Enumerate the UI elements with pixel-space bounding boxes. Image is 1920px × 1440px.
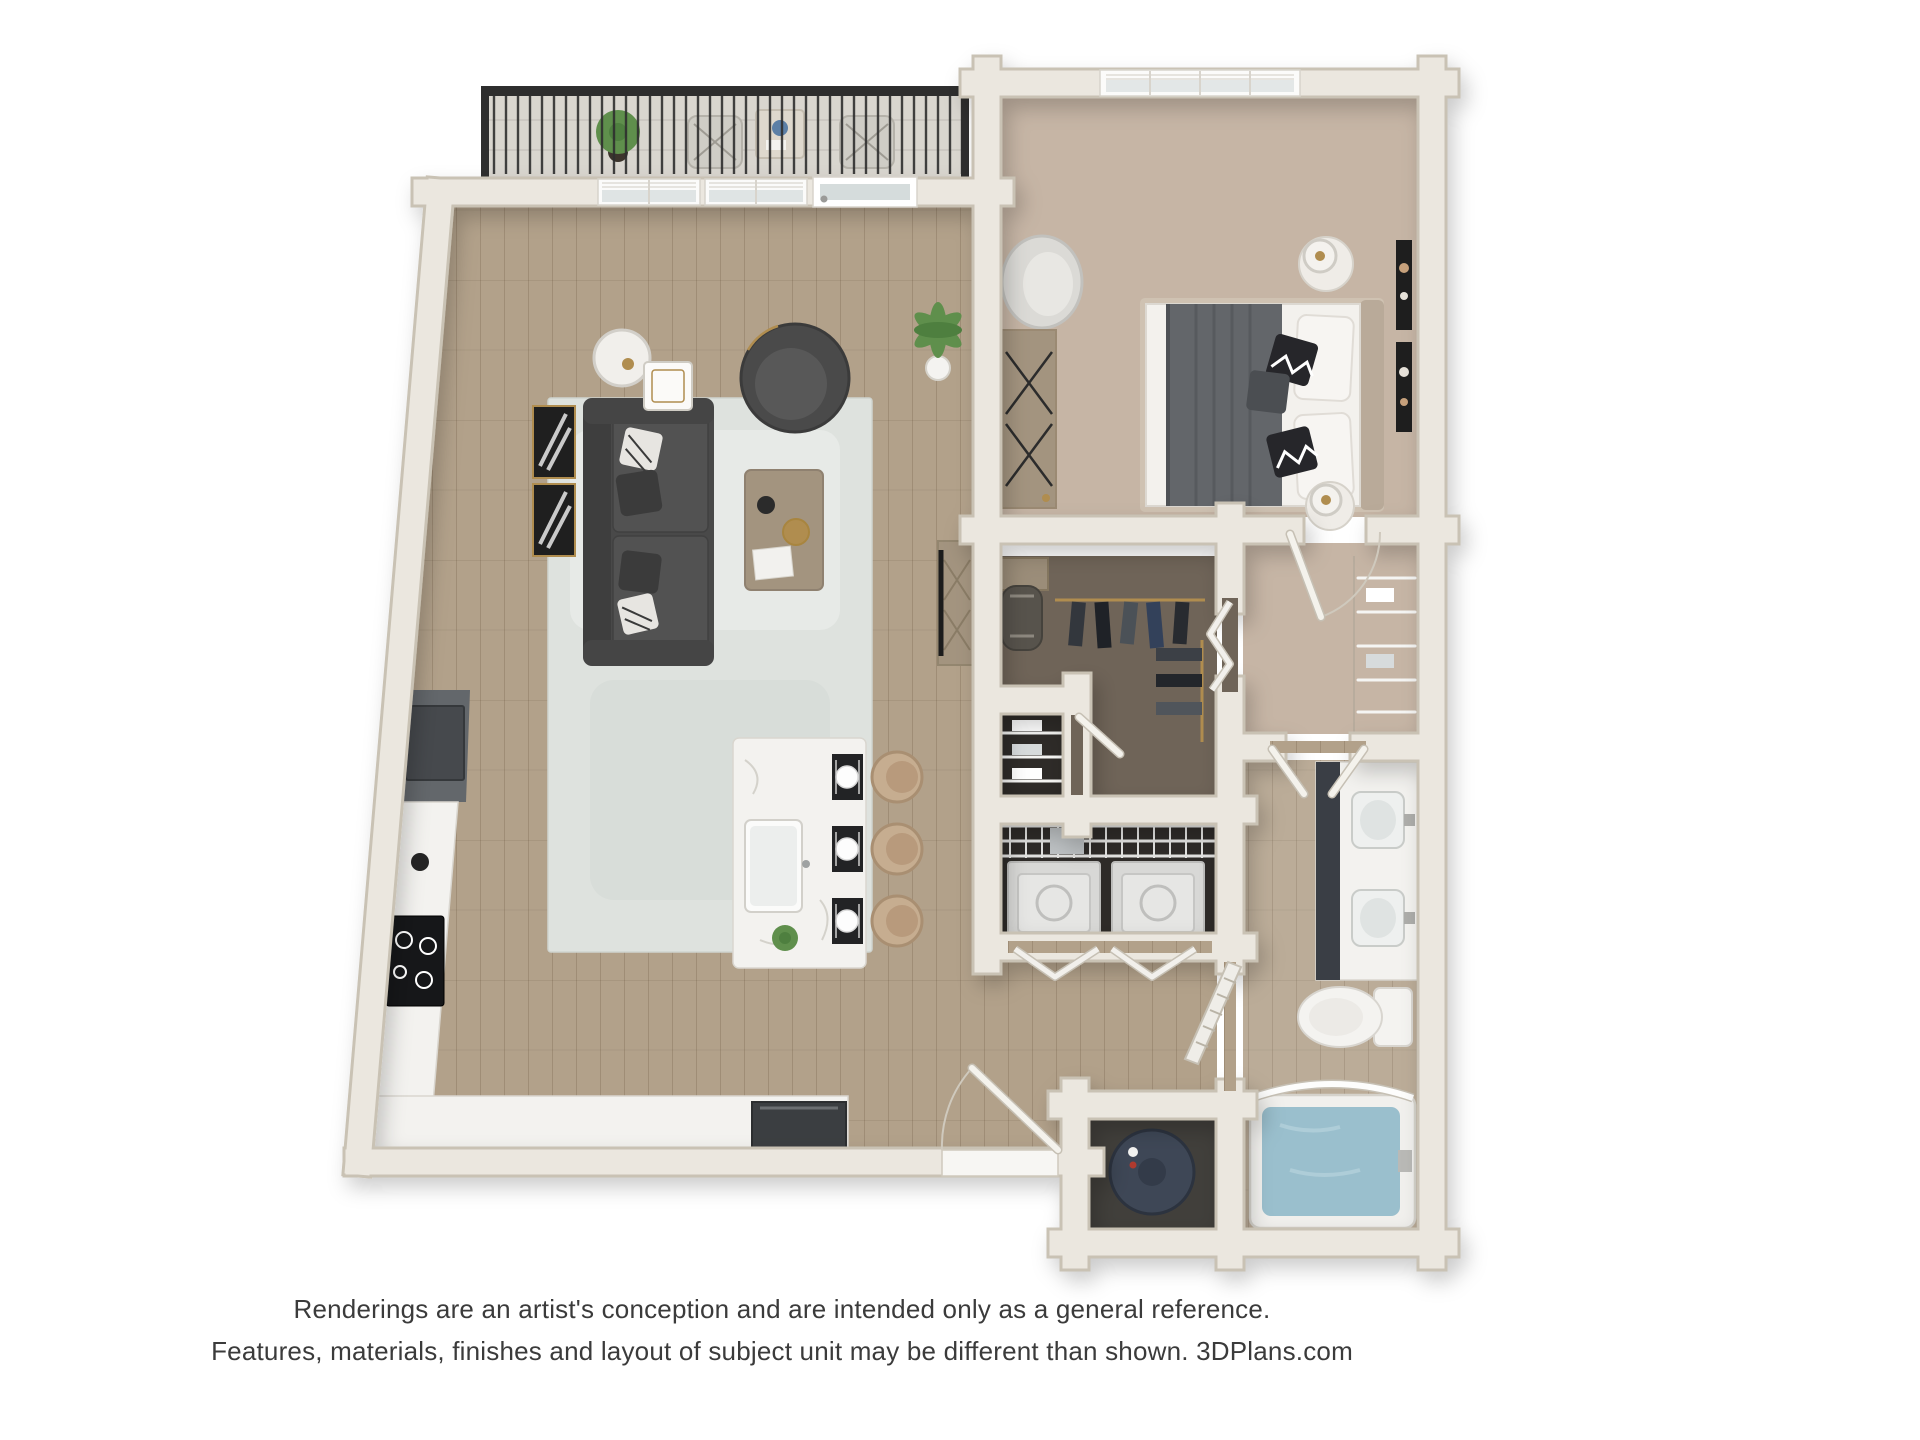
hanging-clothes-side — [1156, 648, 1202, 715]
balcony — [481, 86, 969, 178]
dryer — [1112, 862, 1204, 934]
tub-faucet — [1398, 1150, 1412, 1172]
nightstand-top — [1299, 237, 1353, 291]
faucet — [1404, 814, 1415, 826]
stove-cooktop — [386, 916, 444, 1006]
nightstand-bottom — [1306, 482, 1354, 530]
passage-floor — [1243, 543, 1419, 734]
bedroom-accent-chair — [1002, 236, 1082, 328]
bathtub — [1250, 1084, 1415, 1228]
dresser — [1002, 330, 1056, 508]
towels — [1366, 654, 1394, 668]
living-room-window — [598, 179, 700, 205]
console-table — [938, 541, 976, 665]
floor-lamp — [594, 330, 650, 386]
island-sink — [745, 820, 810, 912]
balcony-railing — [481, 86, 969, 178]
towels — [1366, 588, 1394, 602]
bedroom-window — [1100, 70, 1300, 96]
place-settings — [832, 754, 863, 944]
disclaimer-line-2: Features, materials, finishes and layout… — [0, 1336, 1564, 1367]
door-handle — [821, 196, 828, 203]
kitchen-island — [733, 738, 922, 968]
towels — [1012, 768, 1042, 779]
living-room-window — [705, 179, 807, 205]
coffee-maker — [411, 853, 429, 871]
disclaimer-line-1: Renderings are an artist's conception an… — [0, 1294, 1564, 1325]
floor-plan-page: Renderings are an artist's conception an… — [0, 0, 1920, 1440]
bar-stools — [872, 752, 922, 946]
refrigerator — [406, 706, 464, 780]
coffee-table — [745, 470, 823, 590]
faucet — [802, 860, 810, 868]
towels — [1012, 720, 1042, 731]
faucet — [1404, 912, 1415, 924]
bed — [1140, 298, 1384, 512]
dishwasher — [752, 1102, 846, 1148]
accent-chair — [741, 324, 849, 432]
floor-plan-rendering — [0, 0, 1920, 1440]
headboard — [1360, 300, 1384, 510]
sofa — [583, 398, 714, 666]
floors — [371, 90, 1419, 1230]
toilet — [1298, 987, 1412, 1047]
washer — [1008, 862, 1100, 934]
patio-door — [813, 177, 917, 207]
water-heater-closet — [1110, 1130, 1194, 1214]
island-plant — [772, 925, 798, 951]
towels — [1012, 744, 1042, 755]
side-table — [644, 362, 692, 410]
